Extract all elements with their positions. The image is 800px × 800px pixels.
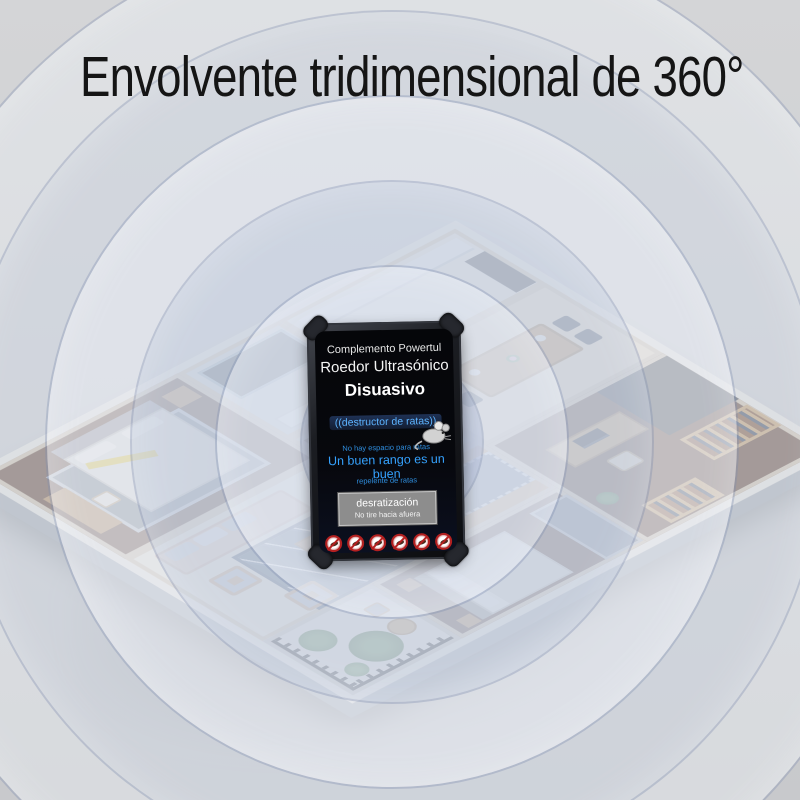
ultrasonic-repeller-device: Complemento Powertul Roedor Ultrasónico … (307, 320, 466, 561)
device-product-line: Roedor Ultrasónico (315, 357, 453, 377)
no-bedbug-icon (390, 534, 407, 551)
balcony-chair (362, 602, 391, 618)
study-chair (605, 450, 646, 473)
device-gray-label-line1: desratización (341, 496, 433, 510)
device-screen: Complemento Powertul Roedor Ultrasónico … (315, 329, 458, 554)
bedroom1-nightstand (162, 385, 203, 408)
headline-title: Envolvente tridimensional de 360° (80, 44, 720, 110)
no-spider-icon (412, 533, 429, 550)
study-plant (591, 489, 624, 507)
device-brand-line: Complemento Powertul (315, 342, 453, 357)
pest-icon-row (319, 533, 457, 553)
device-note-overlap: repelente de ratas (318, 475, 456, 487)
no-mosquito-icon (346, 534, 363, 551)
device-gray-label-line2: No tire hacia afuera (341, 509, 433, 520)
dining-chair-3 (551, 315, 582, 332)
no-cockroach-icon (368, 534, 385, 551)
mouse-icon (412, 417, 453, 452)
no-fly-icon (434, 533, 451, 550)
no-rat-icon (324, 535, 341, 552)
laundry-dark-doorway (465, 251, 537, 293)
product-marketing-image: Complemento Powertul Roedor Ultrasónico … (0, 0, 800, 800)
dining-chair-4 (573, 328, 604, 345)
device-gray-label: desratización No tire hacia afuera (338, 491, 437, 526)
